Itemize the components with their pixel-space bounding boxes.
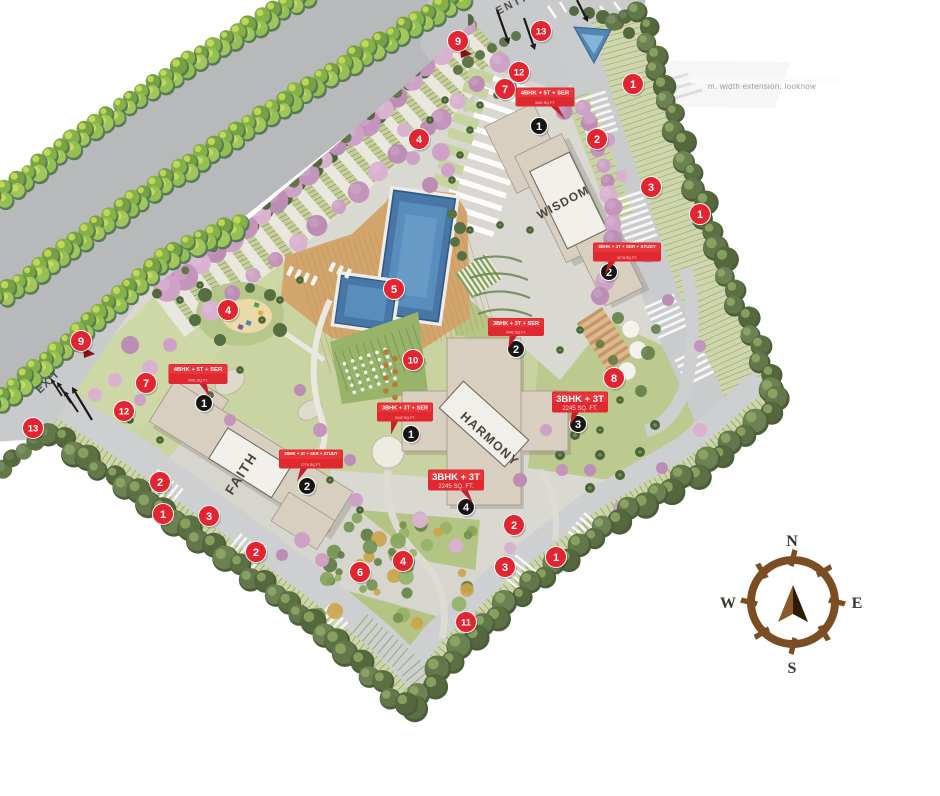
svg-text:9: 9 — [78, 336, 84, 348]
svg-text:3: 3 — [206, 511, 212, 523]
svg-text:3178 SQ.FT.: 3178 SQ.FT. — [617, 256, 637, 260]
svg-text:6: 6 — [357, 567, 363, 579]
svg-text:4: 4 — [400, 556, 407, 568]
svg-text:3: 3 — [575, 419, 581, 431]
svg-text:2: 2 — [511, 520, 517, 532]
svg-text:S: S — [788, 660, 797, 677]
svg-text:1: 1 — [408, 429, 414, 441]
svg-text:11: 11 — [461, 617, 472, 628]
svg-text:4: 4 — [463, 502, 470, 514]
svg-text:2: 2 — [253, 547, 259, 559]
svg-text:1: 1 — [553, 552, 559, 564]
svg-text:2442 SQ.FT.: 2442 SQ.FT. — [506, 331, 526, 335]
svg-text:13: 13 — [536, 26, 547, 37]
svg-text:9: 9 — [455, 36, 461, 48]
svg-text:4: 4 — [225, 305, 232, 317]
svg-text:1: 1 — [201, 398, 207, 410]
svg-text:12: 12 — [119, 406, 130, 417]
svg-text:2: 2 — [513, 344, 519, 356]
svg-text:4BHK + 5T + SER: 4BHK + 5T + SER — [521, 91, 570, 97]
svg-text:12: 12 — [514, 67, 525, 78]
svg-text:7: 7 — [143, 378, 149, 390]
svg-text:1: 1 — [630, 79, 636, 91]
svg-text:3BHK + 4T + SER + STUDY: 3BHK + 4T + SER + STUDY — [598, 244, 655, 249]
svg-text:3BHK + 4T + SER + STUDY: 3BHK + 4T + SER + STUDY — [284, 451, 338, 456]
svg-text:2245 SQ. FT.: 2245 SQ. FT. — [438, 484, 474, 490]
svg-text:4BHK + 5T + SER: 4BHK + 5T + SER — [174, 367, 223, 373]
svg-text:3401 SQ.FT.: 3401 SQ.FT. — [188, 379, 208, 383]
svg-text:13: 13 — [28, 423, 39, 434]
svg-text:3BHK + 3T: 3BHK + 3T — [432, 472, 480, 483]
svg-text:3: 3 — [502, 562, 508, 574]
svg-text:W: W — [720, 595, 736, 612]
svg-text:3: 3 — [648, 182, 654, 194]
svg-text:3BHK + 3T + SER: 3BHK + 3T + SER — [493, 321, 539, 327]
svg-text:10: 10 — [408, 355, 419, 366]
svg-text:2245 SQ. FT.: 2245 SQ. FT. — [562, 406, 598, 412]
svg-text:1: 1 — [697, 209, 703, 221]
svg-text:3401 SQ.FT.: 3401 SQ.FT. — [535, 101, 555, 105]
svg-text:3BHK + 3T + SER: 3BHK + 3T + SER — [382, 405, 428, 411]
svg-text:2: 2 — [157, 477, 163, 489]
svg-text:8: 8 — [611, 373, 617, 385]
svg-text:1: 1 — [160, 509, 166, 521]
svg-text:2: 2 — [304, 481, 310, 493]
svg-text:N: N — [786, 533, 798, 550]
svg-text:E: E — [852, 595, 863, 612]
svg-text:1: 1 — [536, 121, 542, 133]
svg-text:4: 4 — [416, 134, 423, 146]
svg-text:2776 SQ.FT.: 2776 SQ.FT. — [301, 463, 321, 467]
svg-text:7: 7 — [502, 84, 508, 96]
svg-text:5: 5 — [391, 284, 397, 296]
svg-text:2: 2 — [594, 134, 600, 146]
svg-text:2442 SQ.FT.: 2442 SQ.FT. — [395, 416, 415, 420]
svg-text:3BHK + 3T: 3BHK + 3T — [556, 394, 604, 405]
